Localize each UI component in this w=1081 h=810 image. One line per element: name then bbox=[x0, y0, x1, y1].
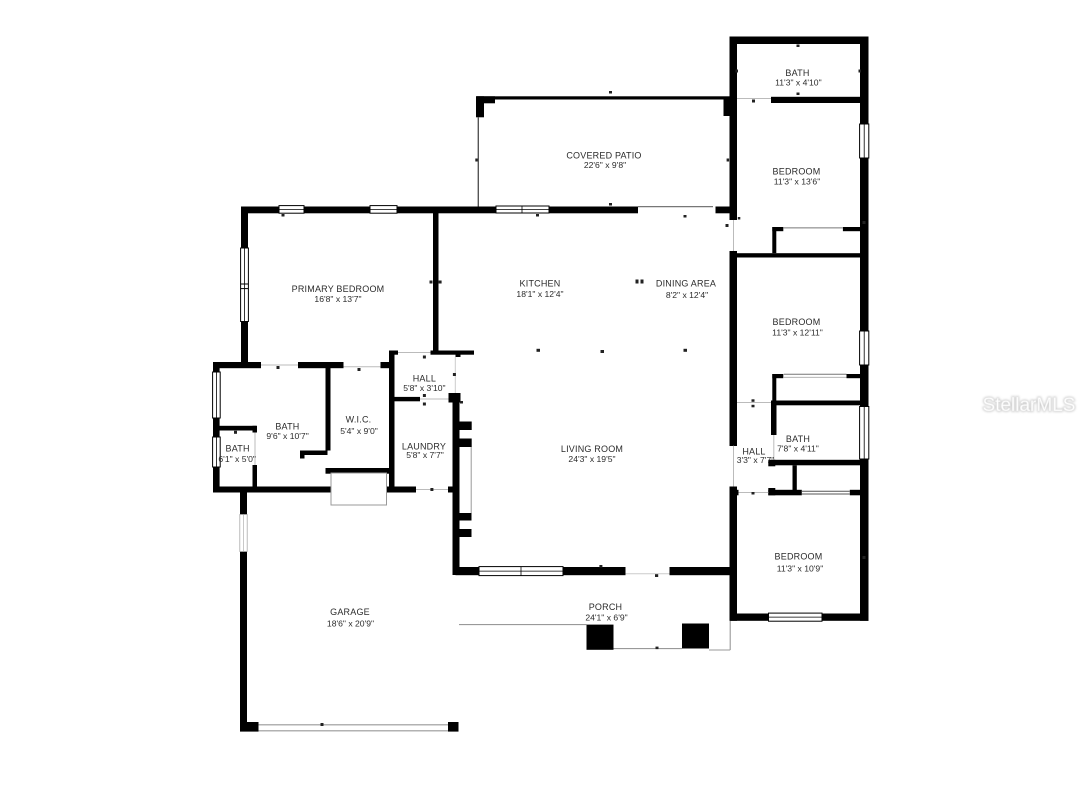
svg-text:DINING AREA: DINING AREA bbox=[656, 279, 716, 289]
svg-text:11'3" x 10'9": 11'3" x 10'9" bbox=[777, 563, 824, 573]
svg-text:BEDROOM: BEDROOM bbox=[773, 166, 821, 176]
svg-text:9'6" x 10'7": 9'6" x 10'7" bbox=[266, 431, 308, 441]
svg-text:GARAGE: GARAGE bbox=[330, 607, 370, 617]
svg-text:11'3" x 4'10": 11'3" x 4'10" bbox=[775, 77, 822, 87]
svg-text:3'3" x 7'7": 3'3" x 7'7" bbox=[737, 455, 775, 465]
svg-text:5'8" x 3'10": 5'8" x 3'10" bbox=[403, 383, 445, 393]
svg-text:BATH: BATH bbox=[785, 68, 809, 78]
svg-text:8'2" x 12'4": 8'2" x 12'4" bbox=[666, 290, 708, 300]
svg-text:W.I.C.: W.I.C. bbox=[346, 415, 372, 425]
svg-text:BEDROOM: BEDROOM bbox=[773, 317, 821, 327]
svg-text:COVERED PATIO: COVERED PATIO bbox=[566, 150, 641, 160]
svg-text:5'4" x 9'0": 5'4" x 9'0" bbox=[340, 426, 378, 436]
svg-text:BEDROOM: BEDROOM bbox=[775, 551, 823, 561]
svg-text:6'1" x 5'0": 6'1" x 5'0" bbox=[218, 454, 256, 464]
svg-text:11'3" x 13'6": 11'3" x 13'6" bbox=[774, 177, 821, 187]
svg-text:16'8" x 13'7": 16'8" x 13'7" bbox=[314, 294, 361, 304]
svg-text:PORCH: PORCH bbox=[589, 602, 623, 612]
svg-text:24'1" x 6'9": 24'1" x 6'9" bbox=[585, 612, 627, 622]
svg-text:BATH: BATH bbox=[226, 443, 250, 453]
svg-text:5'8" x 7'7": 5'8" x 7'7" bbox=[406, 450, 444, 460]
svg-text:18'1" x 12'4": 18'1" x 12'4" bbox=[516, 289, 563, 299]
svg-text:24'3" x 19'5": 24'3" x 19'5" bbox=[568, 454, 615, 464]
svg-text:KITCHEN: KITCHEN bbox=[520, 279, 561, 289]
svg-text:22'6" x 9'8": 22'6" x 9'8" bbox=[584, 160, 626, 170]
svg-text:HALL: HALL bbox=[413, 373, 436, 383]
svg-text:StellarMLS: StellarMLS bbox=[983, 395, 1076, 416]
svg-text:11'3" x 12'11": 11'3" x 12'11" bbox=[772, 327, 823, 337]
svg-text:7'8" x 4'11": 7'8" x 4'11" bbox=[777, 443, 819, 453]
svg-text:BATH: BATH bbox=[275, 422, 299, 432]
svg-text:PRIMARY BEDROOM: PRIMARY BEDROOM bbox=[292, 284, 385, 294]
svg-text:LIVING ROOM: LIVING ROOM bbox=[561, 444, 623, 454]
svg-text:18'6" x 20'9": 18'6" x 20'9" bbox=[327, 618, 374, 628]
svg-text:BATH: BATH bbox=[786, 434, 810, 444]
